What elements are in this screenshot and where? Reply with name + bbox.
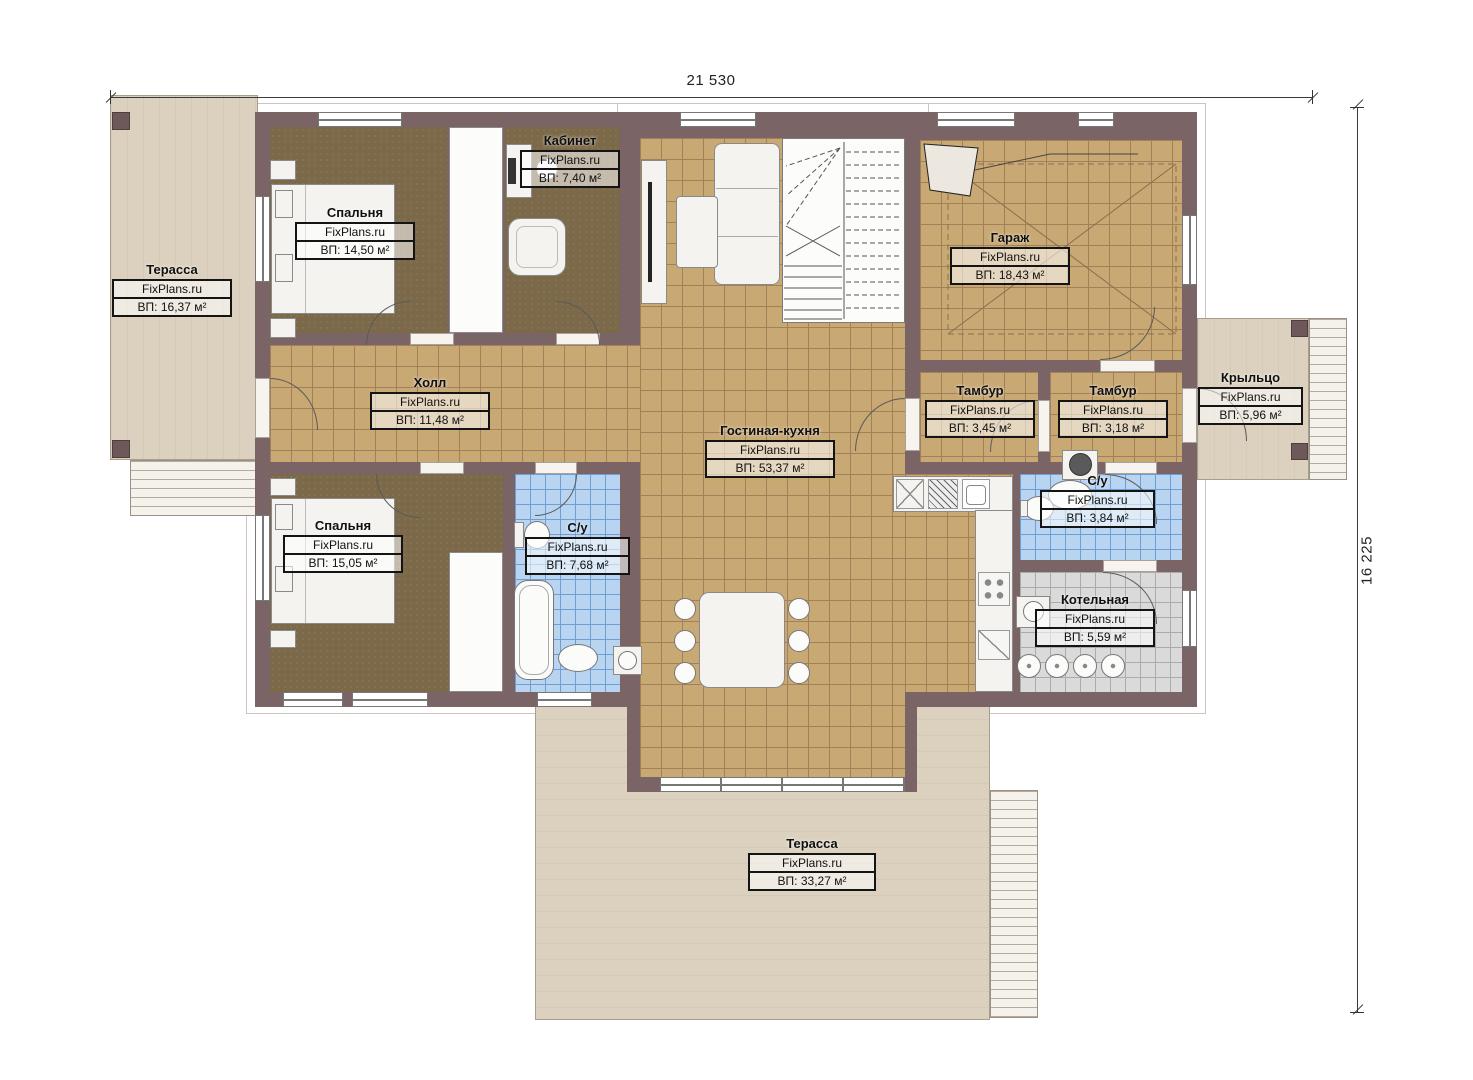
dining-chair [788, 662, 810, 684]
room-label-office: Кабинет FixPlans.ru ВП: 7,40 м² [520, 133, 620, 188]
watermark-text: FixPlans.ru [750, 855, 874, 873]
watermark-text: FixPlans.ru [285, 537, 401, 555]
entrance-door [1182, 388, 1197, 443]
window [1182, 590, 1197, 647]
door-garage [1100, 360, 1155, 372]
room-area: ВП: 3,84 м² [1042, 510, 1153, 526]
dimension-tick [1353, 1004, 1364, 1015]
kitchen-sink-basin [966, 485, 986, 505]
room-label-tambour-left: Тамбур FixPlans.ru ВП: 3,45 м² [925, 383, 1035, 438]
terrace-left-post-bottom [112, 440, 130, 458]
wardrobe-bottom [449, 552, 503, 692]
bathroom-sink [558, 644, 598, 672]
room-name: С/у [525, 520, 630, 535]
dining-table [699, 592, 785, 688]
room-area: ВП: 18,43 м² [952, 267, 1068, 283]
room-label-bathroom-main: С/у FixPlans.ru ВП: 7,68 м² [525, 520, 630, 575]
room-name: С/у [1040, 473, 1155, 488]
bathtub-inner [519, 585, 549, 675]
room-area: ВП: 15,05 м² [285, 555, 401, 571]
room-name: Тамбур [925, 383, 1035, 398]
fridge [978, 630, 1010, 660]
watermark-text: FixPlans.ru [114, 281, 230, 299]
sofa-cushion-line [716, 188, 778, 189]
stove [928, 479, 958, 509]
cooktop [978, 572, 1010, 606]
nightstand [270, 318, 296, 338]
dining-chair [674, 630, 696, 652]
lounge-chair-cushion [516, 226, 558, 268]
room-area: ВП: 53,37 м² [707, 460, 833, 476]
room-area: ВП: 5,59 м² [1037, 629, 1153, 645]
sofa [714, 143, 780, 285]
room-name: Терасса [112, 262, 232, 277]
toilet-tank [514, 522, 524, 548]
sofa-cushion-line [716, 236, 778, 237]
room-label-boiler: Котельная FixPlans.ru ВП: 5,59 м² [1035, 592, 1155, 647]
room-label-bathroom-small: С/у FixPlans.ru ВП: 3,84 м² [1040, 473, 1155, 528]
room-name: Терасса [748, 836, 876, 851]
door-hall-terrace [255, 378, 270, 438]
terrace-left-steps [130, 460, 256, 516]
room-label-garage: Гараж FixPlans.ru ВП: 18,43 м² [950, 230, 1070, 285]
room-area: ВП: 11,48 м² [372, 412, 488, 428]
watermark-text: FixPlans.ru [1037, 611, 1153, 629]
door-bedroom-bottom [420, 462, 464, 474]
door-living-tambour [905, 398, 920, 451]
room-area: ВП: 16,37 м² [114, 299, 230, 315]
room-label-porch: Крыльцо FixPlans.ru ВП: 5,96 м² [1198, 370, 1303, 425]
nightstand [270, 478, 296, 496]
watermark-text: FixPlans.ru [297, 224, 413, 242]
room-label-bedroom-top: Спальня FixPlans.ru ВП: 14,50 м² [295, 205, 415, 260]
room-label-terrace-bottom: Терасса FixPlans.ru ВП: 33,27 м² [748, 836, 876, 891]
watermark-text: FixPlans.ru [952, 249, 1068, 267]
porch-post-bottom [1291, 443, 1308, 460]
dining-chair [674, 598, 696, 620]
boiler-equipment [1073, 654, 1097, 678]
room-name: Кабинет [520, 133, 620, 148]
boiler-equipment [1045, 654, 1069, 678]
dining-chair [788, 598, 810, 620]
pillow [275, 190, 293, 218]
kitchen-cabinet [896, 479, 924, 509]
coffee-table [676, 196, 718, 268]
door-bathroom-main [535, 462, 577, 474]
tv-unit [641, 160, 667, 304]
staircase [782, 138, 905, 323]
room-label-living-kitchen: Гостиная-кухня FixPlans.ru ВП: 53,37 м² [705, 423, 835, 478]
terrace-bottom-steps [990, 790, 1038, 1018]
watermark-text: FixPlans.ru [707, 442, 833, 460]
room-label-tambour-right: Тамбур FixPlans.ru ВП: 3,18 м² [1058, 383, 1168, 438]
tv-screen [648, 182, 652, 282]
watermark-text: FixPlans.ru [1060, 402, 1166, 420]
floor-plan-canvas: Терасса FixPlans.ru ВП: 16,37 м² Спальня… [0, 0, 1473, 1080]
room-area: ВП: 7,40 м² [522, 170, 618, 186]
door-between-tambours [1038, 400, 1050, 452]
porch-post-top [1291, 320, 1308, 337]
door-bedroom-top [410, 333, 454, 345]
window [255, 515, 270, 601]
room-area: ВП: 14,50 м² [297, 242, 413, 258]
room-name: Тамбур [1058, 383, 1168, 398]
room-name: Спальня [295, 205, 415, 220]
nightstand [270, 160, 296, 180]
window [537, 692, 592, 707]
window [680, 112, 756, 127]
room-label-terrace-left: Терасса FixPlans.ru ВП: 16,37 м² [112, 262, 232, 317]
room-label-bedroom-bottom: Спальня FixPlans.ru ВП: 15,05 м² [283, 518, 403, 573]
watermark-text: FixPlans.ru [522, 152, 618, 170]
room-name: Крыльцо [1198, 370, 1303, 385]
dimension-line-top [110, 97, 1312, 98]
watermark-text: FixPlans.ru [927, 402, 1033, 420]
nightstand [270, 630, 296, 648]
dining-chair [788, 630, 810, 652]
window [937, 112, 1015, 127]
door-boiler [1103, 560, 1157, 572]
window [1078, 112, 1114, 127]
room-area: ВП: 3,45 м² [927, 420, 1033, 436]
porch-steps [1309, 318, 1347, 480]
computer [508, 158, 516, 184]
washing-machine-drum [618, 651, 637, 670]
window [352, 692, 428, 707]
room-name: Спальня [283, 518, 403, 533]
room-area: ВП: 7,68 м² [527, 557, 628, 573]
room-name: Котельная [1035, 592, 1155, 607]
window [283, 692, 343, 707]
room-name: Гараж [950, 230, 1070, 245]
window [255, 196, 270, 282]
room-label-hall: Холл FixPlans.ru ВП: 11,48 м² [370, 375, 490, 430]
room-name: Гостиная-кухня [705, 423, 835, 438]
gate-leader-line [975, 154, 1138, 170]
terrace-left-post-top [112, 112, 130, 130]
room-area: ВП: 33,27 м² [750, 873, 874, 889]
room-name: Холл [370, 375, 490, 390]
garage-gate-symbol [924, 144, 978, 196]
boiler-equipment [1017, 654, 1041, 678]
dimension-label-height: 16 225 [1359, 516, 1376, 606]
dimension-label-width: 21 530 [110, 72, 1312, 89]
small-bath-toilet-tank [1020, 500, 1028, 517]
watermark-text: FixPlans.ru [372, 394, 488, 412]
watermark-text: FixPlans.ru [1200, 389, 1301, 407]
dimension-tick [1353, 99, 1364, 110]
window [318, 112, 402, 127]
dining-chair [674, 662, 696, 684]
watermark-text: FixPlans.ru [1042, 492, 1153, 510]
pillow [275, 254, 293, 282]
watermark-text: FixPlans.ru [527, 539, 628, 557]
boiler-equipment [1101, 654, 1125, 678]
room-area: ВП: 5,96 м² [1200, 407, 1301, 423]
window [1182, 215, 1197, 285]
wardrobe-top [449, 127, 503, 333]
room-area: ВП: 3,18 м² [1060, 420, 1166, 436]
panoramic-window [660, 777, 905, 792]
